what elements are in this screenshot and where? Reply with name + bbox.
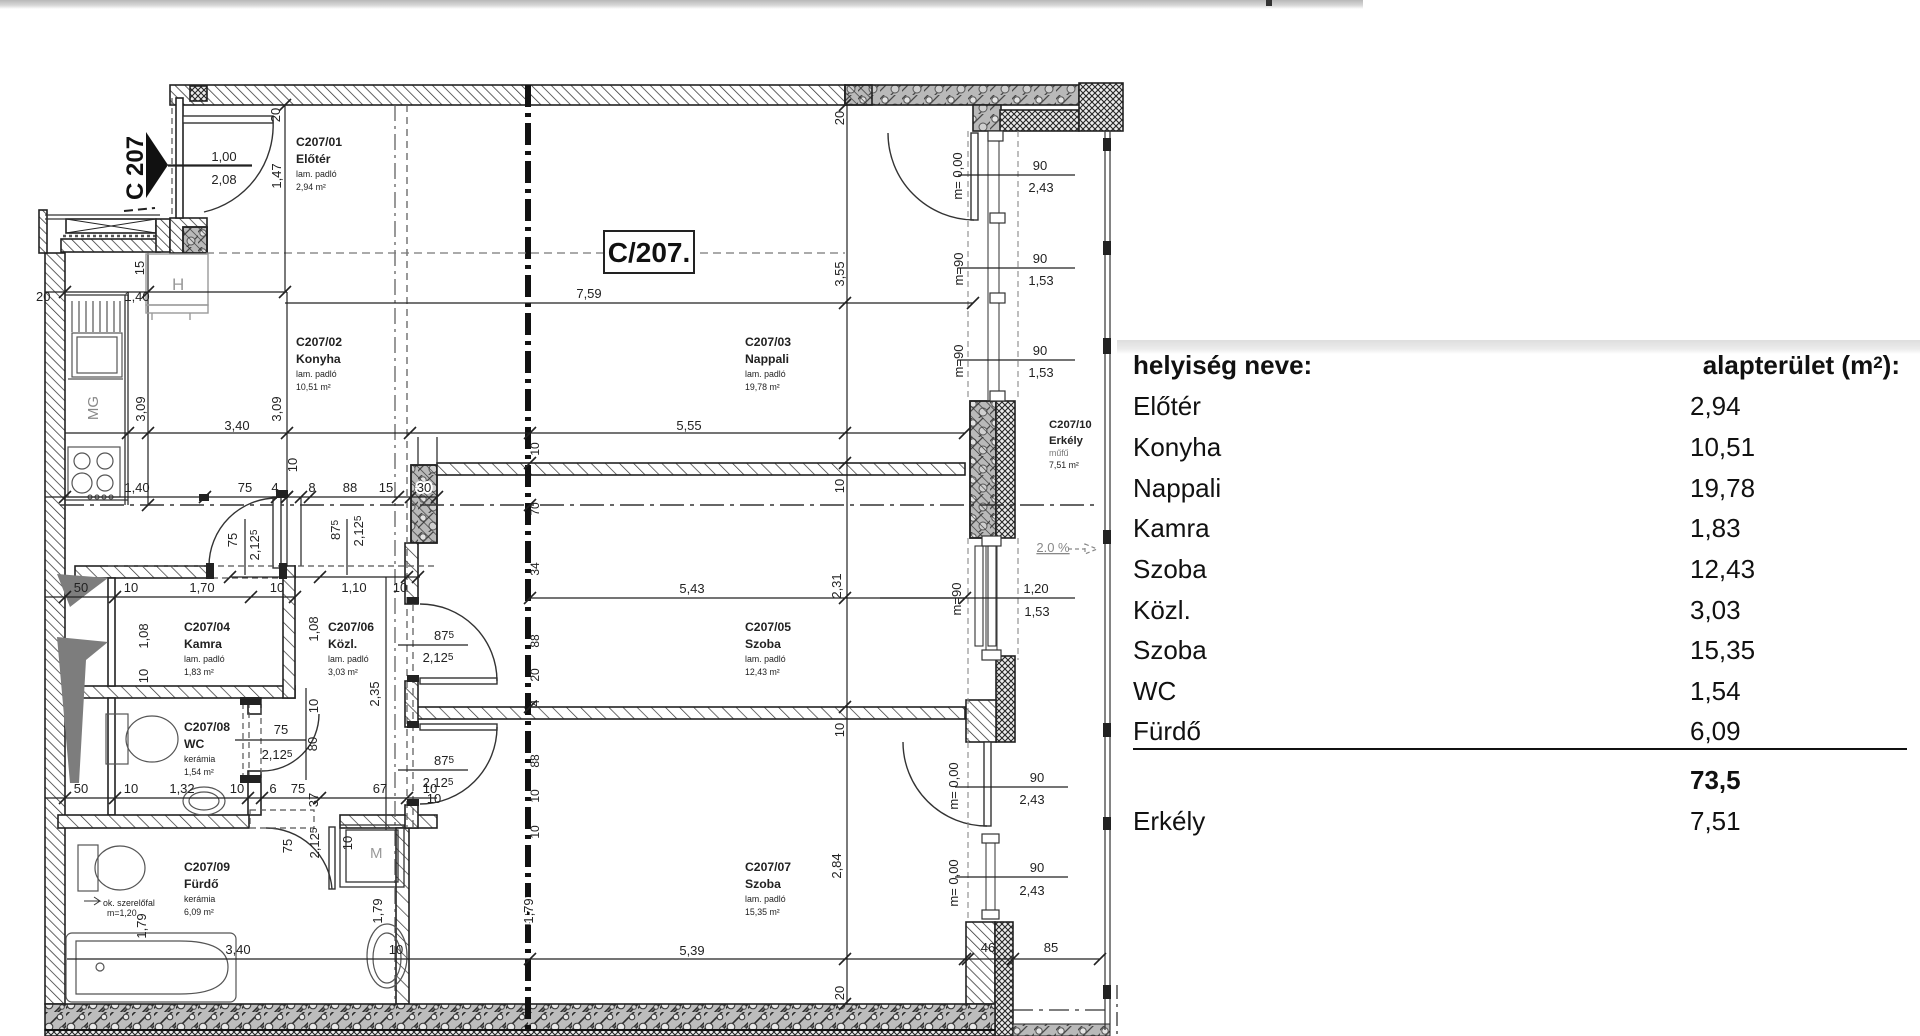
svg-text:10: 10 <box>136 669 151 683</box>
svg-text:75: 75 <box>280 839 295 853</box>
svg-text:15,35: 15,35 <box>1690 635 1755 665</box>
svg-text:19,78 m²: 19,78 m² <box>745 382 780 392</box>
svg-text:2,43: 2,43 <box>1019 792 1044 807</box>
svg-text:3,40: 3,40 <box>224 418 249 433</box>
svg-text:10: 10 <box>528 825 542 839</box>
svg-text:20: 20 <box>268 108 283 122</box>
svg-text:Nappali: Nappali <box>1133 473 1221 503</box>
svg-text:10,51: 10,51 <box>1690 432 1755 462</box>
svg-text:12,43: 12,43 <box>1690 554 1755 584</box>
svg-text:Szoba: Szoba <box>1133 554 1207 584</box>
svg-text:75: 75 <box>238 480 252 495</box>
svg-text:C207/06: C207/06 <box>328 620 374 634</box>
svg-text:37: 37 <box>306 793 321 807</box>
svg-text:lam. padló: lam. padló <box>745 654 786 664</box>
svg-text:3,55: 3,55 <box>832 261 847 286</box>
svg-text:10: 10 <box>427 791 441 806</box>
svg-text:3,03: 3,03 <box>1690 595 1741 625</box>
svg-text:7,51 m²: 7,51 m² <box>1049 460 1079 470</box>
svg-text:Kamra: Kamra <box>1133 513 1210 543</box>
svg-text:alapterület (m2):: alapterület (m2): <box>1703 350 1900 380</box>
svg-text:kerámia: kerámia <box>184 894 215 904</box>
svg-text:10: 10 <box>124 580 138 595</box>
svg-text:2,94: 2,94 <box>1690 391 1741 421</box>
svg-text:75: 75 <box>225 533 240 547</box>
svg-text:műfű: műfű <box>1049 448 1069 458</box>
svg-text:m= 0,00: m= 0,00 <box>946 859 961 906</box>
svg-text:C207/03: C207/03 <box>745 335 791 349</box>
svg-text:15: 15 <box>379 480 393 495</box>
svg-text:10: 10 <box>230 781 244 796</box>
svg-text:m=90: m=90 <box>949 583 964 616</box>
svg-text:20: 20 <box>832 986 847 1000</box>
svg-text:5,55: 5,55 <box>676 418 701 433</box>
svg-text:m= 0,00: m= 0,00 <box>946 762 961 809</box>
svg-text:C 207: C 207 <box>122 136 149 200</box>
svg-text:88: 88 <box>528 754 542 768</box>
svg-text:helyiség neve:: helyiség neve: <box>1133 350 1312 380</box>
svg-text:75: 75 <box>274 722 288 737</box>
svg-text:10: 10 <box>528 442 542 456</box>
svg-text:19,78: 19,78 <box>1690 473 1755 503</box>
svg-text:2,125: 2,125 <box>423 650 454 665</box>
svg-text:10,51 m²: 10,51 m² <box>296 382 331 392</box>
svg-text:1,79: 1,79 <box>521 898 536 923</box>
svg-text:1,40: 1,40 <box>124 289 149 304</box>
svg-text:4: 4 <box>271 480 278 495</box>
svg-text:1,83 m²: 1,83 m² <box>184 667 214 677</box>
svg-text:88: 88 <box>343 480 357 495</box>
svg-text:15: 15 <box>132 261 147 275</box>
svg-text:3,09: 3,09 <box>269 396 284 421</box>
svg-text:1,54 m²: 1,54 m² <box>184 767 214 777</box>
svg-text:50: 50 <box>74 781 88 796</box>
svg-text:10: 10 <box>832 479 847 493</box>
svg-text:1,53: 1,53 <box>1024 604 1049 619</box>
svg-text:7,59: 7,59 <box>576 286 601 301</box>
svg-text:2,08: 2,08 <box>211 172 236 187</box>
svg-text:875: 875 <box>434 628 454 643</box>
svg-text:1,53: 1,53 <box>1028 273 1053 288</box>
svg-text:lam. padló: lam. padló <box>328 654 369 664</box>
svg-text:90: 90 <box>1033 343 1047 358</box>
svg-text:90: 90 <box>1030 770 1044 785</box>
svg-text:50: 50 <box>74 580 88 595</box>
svg-text:46: 46 <box>981 940 995 955</box>
svg-text:88: 88 <box>528 634 542 648</box>
svg-text:MG: MG <box>85 396 102 420</box>
svg-text:Szoba: Szoba <box>1133 635 1207 665</box>
svg-text:C207/04: C207/04 <box>184 620 230 634</box>
svg-text:10: 10 <box>124 781 138 796</box>
svg-text:Nappali: Nappali <box>745 352 789 366</box>
svg-text:73,5: 73,5 <box>1690 765 1741 795</box>
svg-text:75: 75 <box>291 781 305 796</box>
svg-text:875: 875 <box>328 520 343 540</box>
svg-text:90: 90 <box>1030 860 1044 875</box>
svg-text:kerámia: kerámia <box>184 754 215 764</box>
svg-text:2,43: 2,43 <box>1019 883 1044 898</box>
svg-text:5,39: 5,39 <box>679 943 704 958</box>
svg-text:Előtér: Előtér <box>296 152 331 166</box>
svg-text:2,125: 2,125 <box>262 747 293 762</box>
svg-text:Előtér: Előtér <box>1133 391 1201 421</box>
svg-text:20: 20 <box>36 289 50 304</box>
svg-text:1,79: 1,79 <box>370 898 385 923</box>
svg-text:1,20: 1,20 <box>1023 581 1048 596</box>
svg-text:6,09 m²: 6,09 m² <box>184 907 214 917</box>
svg-text:Kamra: Kamra <box>184 637 222 651</box>
svg-text:8: 8 <box>308 480 315 495</box>
svg-text:875: 875 <box>434 753 454 768</box>
svg-text:Közl.: Közl. <box>1133 595 1191 625</box>
svg-text:1,08: 1,08 <box>306 616 321 641</box>
svg-text:WC: WC <box>1133 676 1176 706</box>
svg-text:lam. padló: lam. padló <box>184 654 225 664</box>
svg-text:85: 85 <box>1044 940 1058 955</box>
svg-text:12,43 m²: 12,43 m² <box>745 667 780 677</box>
svg-text:10: 10 <box>306 699 321 713</box>
svg-text:H: H <box>172 275 184 294</box>
svg-text:C207/02: C207/02 <box>296 335 342 349</box>
svg-text:m=90: m=90 <box>951 345 966 378</box>
svg-text:80: 80 <box>305 737 320 751</box>
svg-text:1,10: 1,10 <box>341 580 366 595</box>
svg-text:2,125: 2,125 <box>247 529 262 560</box>
svg-text:C207/05: C207/05 <box>745 620 791 634</box>
svg-text:lam. padló: lam. padló <box>296 369 337 379</box>
svg-text:20: 20 <box>528 668 542 682</box>
svg-text:2.0 %: 2.0 % <box>1036 540 1070 555</box>
svg-text:70: 70 <box>528 502 542 516</box>
svg-text:1,70: 1,70 <box>189 580 214 595</box>
svg-text:3,40: 3,40 <box>225 942 250 957</box>
svg-text:m= 0,00: m= 0,00 <box>950 152 965 199</box>
svg-text:2,94 m²: 2,94 m² <box>296 182 326 192</box>
svg-text:2,125: 2,125 <box>351 515 366 546</box>
svg-text:Fürdő: Fürdő <box>184 877 219 891</box>
svg-text:Konyha: Konyha <box>296 352 341 366</box>
svg-text:90: 90 <box>1033 251 1047 266</box>
svg-text:Fürdő: Fürdő <box>1133 716 1201 746</box>
svg-text:10: 10 <box>393 580 407 595</box>
svg-text:7,51: 7,51 <box>1690 806 1741 836</box>
svg-text:Szoba: Szoba <box>745 637 781 651</box>
svg-text:34: 34 <box>528 562 542 576</box>
svg-text:10: 10 <box>832 723 847 737</box>
svg-text:6: 6 <box>269 781 276 796</box>
svg-text:30: 30 <box>417 480 431 495</box>
svg-text:2,84: 2,84 <box>829 853 844 878</box>
svg-text:1,32: 1,32 <box>169 781 194 796</box>
svg-text:67: 67 <box>373 781 387 796</box>
svg-text:C207/08: C207/08 <box>184 720 230 734</box>
svg-text:10: 10 <box>389 942 403 957</box>
svg-text:2,125: 2,125 <box>307 827 322 858</box>
svg-text:3,03 m²: 3,03 m² <box>328 667 358 677</box>
svg-text:C207/09: C207/09 <box>184 860 230 874</box>
svg-text:Erkély: Erkély <box>1133 806 1205 836</box>
svg-text:10: 10 <box>285 458 300 472</box>
svg-text:1,83: 1,83 <box>1690 513 1741 543</box>
svg-text:90: 90 <box>1033 158 1047 173</box>
svg-text:3,09: 3,09 <box>133 396 148 421</box>
svg-text:2,43: 2,43 <box>1028 180 1053 195</box>
svg-text:C207/01: C207/01 <box>296 135 342 149</box>
svg-text:M: M <box>370 845 383 862</box>
svg-text:C207/07: C207/07 <box>745 860 791 874</box>
svg-text:20: 20 <box>832 111 847 125</box>
svg-text:10: 10 <box>270 580 284 595</box>
svg-text:10: 10 <box>340 836 355 850</box>
svg-text:1,40: 1,40 <box>124 480 149 495</box>
svg-text:1,00: 1,00 <box>211 149 236 164</box>
svg-text:Szoba: Szoba <box>745 877 781 891</box>
svg-text:2,31: 2,31 <box>829 573 844 598</box>
svg-text:Közl.: Közl. <box>328 637 357 651</box>
svg-text:Konyha: Konyha <box>1133 432 1222 462</box>
svg-text:m=90: m=90 <box>951 253 966 286</box>
svg-text:lam. padló: lam. padló <box>745 369 786 379</box>
svg-text:5,43: 5,43 <box>679 581 704 596</box>
svg-text:C/207.: C/207. <box>608 237 691 268</box>
svg-text:C207/10: C207/10 <box>1049 419 1092 431</box>
svg-text:1,08: 1,08 <box>136 623 151 648</box>
svg-text:lam. padló: lam. padló <box>745 894 786 904</box>
svg-text:lam. padló: lam. padló <box>296 169 337 179</box>
svg-text:2,35: 2,35 <box>367 681 382 706</box>
svg-text:Erkély: Erkély <box>1049 435 1084 447</box>
svg-text:1,54: 1,54 <box>1690 676 1741 706</box>
svg-text:WC: WC <box>184 737 205 751</box>
svg-text:m=1,20: m=1,20 <box>107 908 137 918</box>
svg-text:6,09: 6,09 <box>1690 716 1741 746</box>
svg-text:2,125: 2,125 <box>423 775 454 790</box>
svg-text:1,47: 1,47 <box>269 163 284 188</box>
svg-text:1,53: 1,53 <box>1028 365 1053 380</box>
svg-text:10: 10 <box>528 789 542 803</box>
svg-text:15,35 m²: 15,35 m² <box>745 907 780 917</box>
svg-text:ok. szerelőfal: ok. szerelőfal <box>103 898 155 908</box>
svg-text:4: 4 <box>528 699 542 706</box>
